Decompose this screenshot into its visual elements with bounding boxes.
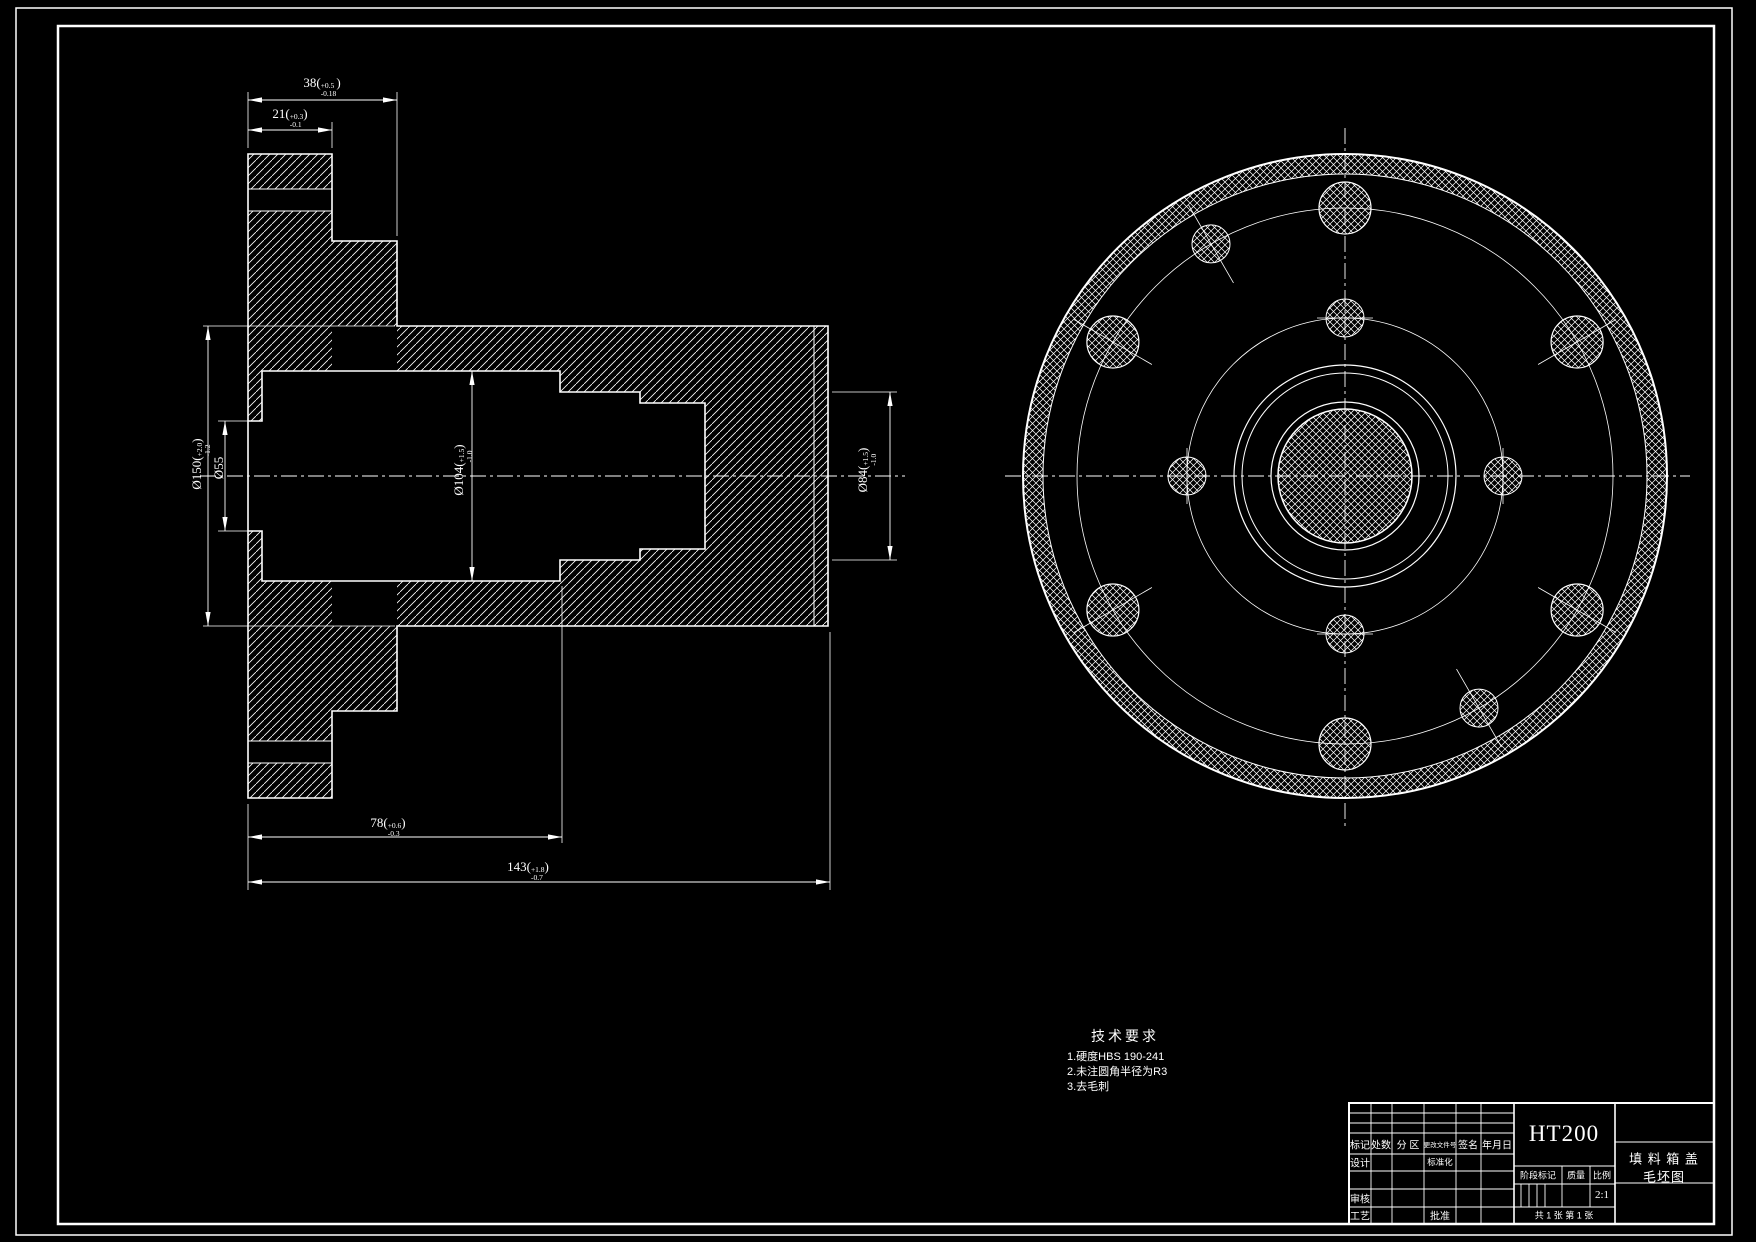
part-name-line2: 毛坯图 bbox=[1643, 1167, 1685, 1186]
tech-req-item: 2.未注圆角半径为R3 bbox=[1067, 1065, 1167, 1080]
dim-length-21: 21(+0.3-0.1) bbox=[272, 106, 307, 128]
technical-requirements: 技术要求 1.硬度HBS 190-241 2.未注圆角半径为R3 3.去毛刺 bbox=[1067, 1026, 1167, 1095]
check-label: 审核 bbox=[1350, 1191, 1370, 1206]
scale-label: 比例 bbox=[1593, 1169, 1611, 1182]
col-doc-label: 更改文件号 bbox=[1424, 1139, 1457, 1149]
dim-length-38: 38(+0.5-0.18) bbox=[303, 75, 340, 97]
dim-dia-55: Ø55 bbox=[211, 457, 227, 479]
tech-req-item: 1.硬度HBS 190-241 bbox=[1067, 1050, 1167, 1065]
sheet-count-label: 共 1 张 第 1 张 bbox=[1535, 1209, 1594, 1222]
part-name-line1: 填 料 箱 盖 bbox=[1629, 1149, 1699, 1168]
stage-mark-label: 阶段标记 bbox=[1520, 1169, 1556, 1182]
material-label: HT200 bbox=[1529, 1121, 1599, 1147]
cad-canvas: 38(+0.5-0.18) 21(+0.3-0.1) 78(+0.6-0.3) … bbox=[0, 0, 1756, 1242]
process-label: 工艺 bbox=[1350, 1208, 1370, 1223]
dim-dia-84: Ø84(+1.5-1.0) bbox=[855, 448, 877, 493]
scale-value: 2:1 bbox=[1595, 1189, 1609, 1201]
dim-dia-150: Ø150(+2.0-1.2) bbox=[189, 438, 211, 489]
dim-length-143: 143(+1.8-0.7) bbox=[507, 859, 549, 881]
design-label: 设计 bbox=[1350, 1155, 1370, 1170]
approve-label: 批准 bbox=[1430, 1208, 1450, 1223]
col-sign-label: 签名 bbox=[1458, 1137, 1478, 1152]
standardize-label: 标准化 bbox=[1427, 1156, 1453, 1168]
right-front-view bbox=[1005, 128, 1690, 826]
left-section-view bbox=[200, 92, 905, 890]
dim-length-78: 78(+0.6-0.3) bbox=[370, 815, 405, 837]
tech-req-item: 3.去毛刺 bbox=[1067, 1080, 1167, 1095]
cad-drawing bbox=[0, 0, 1756, 1242]
weight-label: 质量 bbox=[1567, 1169, 1585, 1182]
tech-req-title: 技术要求 bbox=[1091, 1026, 1167, 1046]
col-date-label: 年月日 bbox=[1482, 1137, 1512, 1152]
col-zone-label: 分 区 bbox=[1397, 1137, 1420, 1152]
dim-dia-104: Ø104(+1.5-1.0) bbox=[451, 444, 473, 495]
col-mark-label: 标记 bbox=[1350, 1137, 1370, 1152]
col-count-label: 处数 bbox=[1371, 1137, 1391, 1152]
